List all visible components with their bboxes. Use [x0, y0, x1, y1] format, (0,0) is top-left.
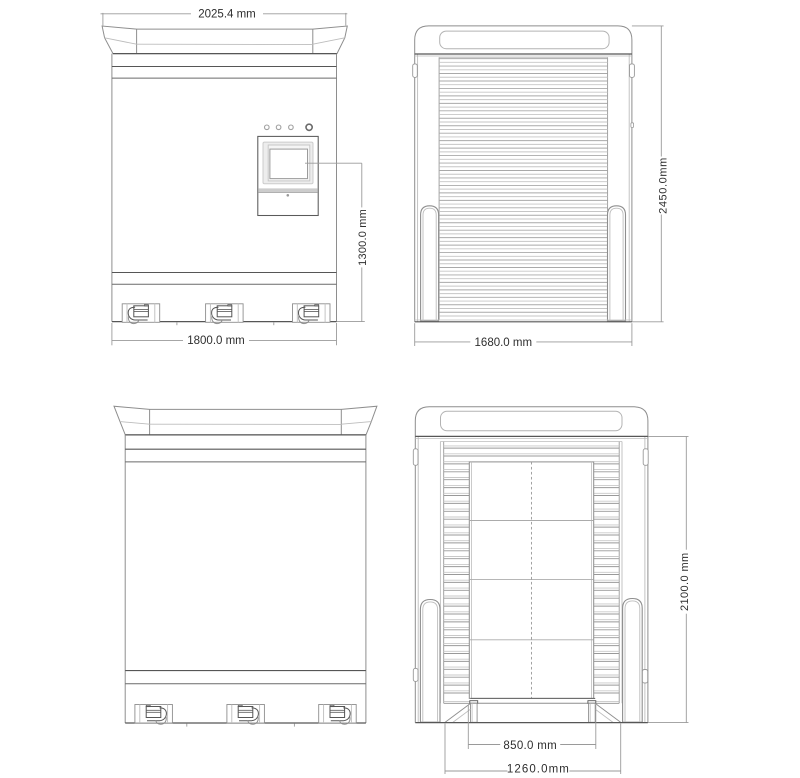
svg-text:2025.4 mm: 2025.4 mm	[198, 9, 256, 21]
svg-text:850.0 mm: 850.0 mm	[503, 740, 557, 752]
svg-text:1680.0 mm: 1680.0 mm	[475, 337, 533, 349]
svg-text:1800.0 mm: 1800.0 mm	[187, 335, 245, 347]
svg-text:2450.0mm: 2450.0mm	[658, 157, 670, 214]
svg-text:2100.0 mm: 2100.0 mm	[679, 552, 691, 611]
svg-text:1260.0mm: 1260.0mm	[507, 764, 570, 776]
svg-text:1300.0 mm: 1300.0 mm	[357, 209, 369, 266]
